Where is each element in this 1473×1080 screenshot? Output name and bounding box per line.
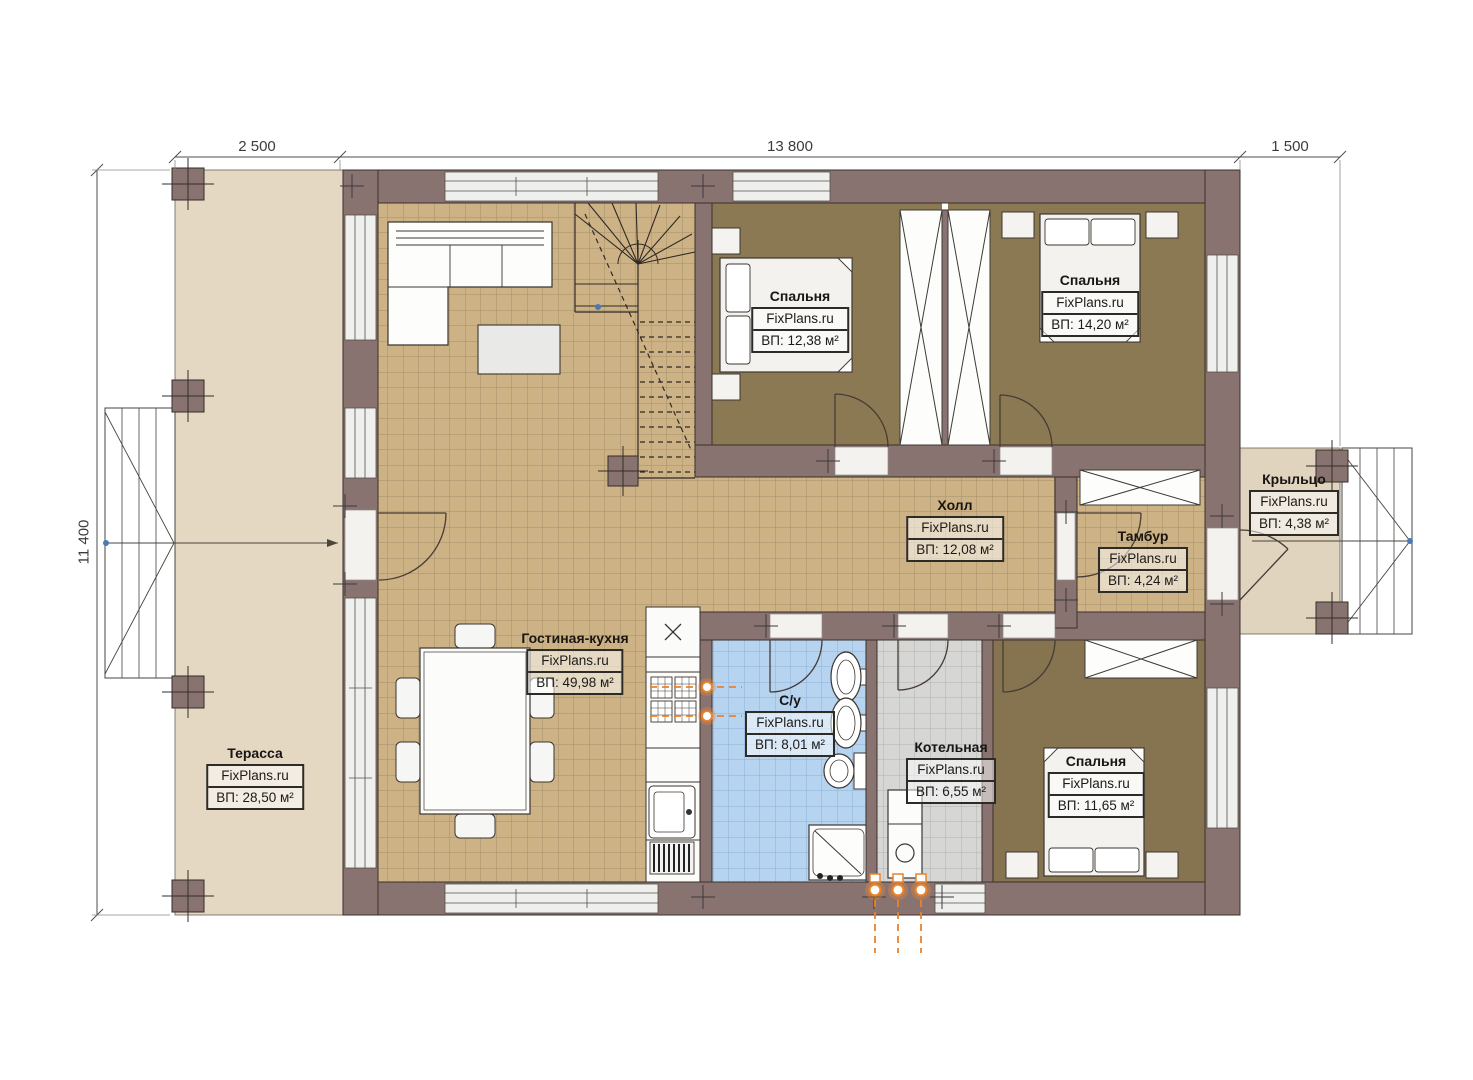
room-label-porch: Крыльцо FixPlans.ru ВП: 4,38 м² [1249, 471, 1339, 536]
wall-wardrobe-divider [942, 210, 948, 445]
room-brand: FixPlans.ru [1050, 774, 1143, 796]
floor-plan: 2 500 13 800 1 500 11 400 Терасса FixPla… [0, 0, 1473, 1080]
dimension-house-depth: 11 400 [76, 520, 93, 565]
shower [809, 825, 868, 881]
kitchen-counter [646, 607, 700, 882]
wardrobe-bedroom1 [900, 210, 942, 445]
door-opening-bedroom1 [835, 447, 888, 475]
wall-bath-boiler [866, 640, 877, 882]
room-label-bedroom1: Спальня FixPlans.ru ВП: 12,38 м² [751, 288, 849, 353]
room-info-box: FixPlans.ru ВП: 11,65 м² [1048, 772, 1145, 818]
room-area: ВП: 49,98 м² [528, 673, 622, 693]
room-brand: FixPlans.ru [1043, 293, 1137, 315]
window-left-3 [345, 598, 376, 868]
toilet [824, 754, 854, 788]
room-area: ВП: 12,38 м² [753, 331, 847, 351]
room-name: С/у [745, 692, 835, 709]
room-name: Спальня [1041, 272, 1139, 289]
room-area: ВП: 14,20 м² [1043, 315, 1137, 335]
room-brand: FixPlans.ru [1251, 492, 1337, 514]
coffee-table [478, 325, 560, 374]
window-left-2 [345, 408, 376, 478]
room-brand: FixPlans.ru [528, 651, 622, 673]
toilet-tank [854, 753, 867, 789]
room-area: ВП: 6,55 м² [908, 782, 994, 802]
door-opening-porch [1207, 528, 1238, 600]
room-brand: FixPlans.ru [1100, 549, 1186, 571]
drainer [650, 842, 694, 874]
room-brand: FixPlans.ru [208, 766, 302, 788]
wall-kitchen-bath [700, 640, 712, 882]
room-label-terrace: Терасса FixPlans.ru ВП: 28,50 м² [206, 745, 304, 810]
room-name: Терасса [206, 745, 304, 762]
window-bedroom2-right [1207, 255, 1238, 372]
dimension-terrace-width: 2 500 [238, 138, 276, 155]
room-brand: FixPlans.ru [747, 713, 833, 735]
room-area: ВП: 8,01 м² [747, 735, 833, 755]
room-name: Спальня [1048, 753, 1145, 770]
room-area: ВП: 4,24 м² [1100, 571, 1186, 591]
sink-2 [831, 698, 861, 748]
window-living-top [445, 172, 658, 201]
room-label-hall: Холл FixPlans.ru ВП: 12,08 м² [906, 497, 1004, 562]
room-label-boiler: Котельная FixPlans.ru ВП: 6,55 м² [906, 739, 996, 804]
room-info-box: FixPlans.ru ВП: 28,50 м² [206, 764, 304, 810]
dining-table [420, 648, 530, 814]
room-name: Гостиная-кухня [521, 630, 628, 647]
room-name: Спальня [751, 288, 849, 305]
wardrobe-bedroom3 [1085, 640, 1197, 678]
window-bedroom3-right [1207, 688, 1238, 828]
room-info-box: FixPlans.ru ВП: 12,38 м² [751, 307, 849, 353]
room-label-bedroom3: Спальня FixPlans.ru ВП: 11,65 м² [1048, 753, 1145, 818]
room-brand: FixPlans.ru [908, 760, 994, 782]
window-living-bottom [445, 884, 658, 913]
room-label-tambour: Тамбур FixPlans.ru ВП: 4,24 м² [1098, 528, 1188, 593]
room-brand: FixPlans.ru [908, 518, 1002, 540]
floor-plan-drawing [0, 0, 1473, 1080]
door-opening-terrace [345, 510, 376, 580]
room-info-box: FixPlans.ru ВП: 8,01 м² [745, 711, 835, 757]
room-info-box: FixPlans.ru ВП: 4,38 м² [1249, 490, 1339, 536]
room-name: Котельная [906, 739, 996, 756]
room-info-box: FixPlans.ru ВП: 12,08 м² [906, 516, 1004, 562]
wall-living-bedroom1 [695, 203, 712, 477]
room-info-box: FixPlans.ru ВП: 4,24 м² [1098, 547, 1188, 593]
room-name: Холл [906, 497, 1004, 514]
steps-marker-dot [103, 540, 109, 546]
room-name: Тамбур [1098, 528, 1188, 545]
kitchen-sink [649, 786, 695, 838]
window-bedroom1-top [733, 172, 830, 201]
dimension-porch-width: 1 500 [1271, 138, 1309, 155]
porch-marker-dot [1407, 538, 1413, 544]
stair-marker-dot [595, 304, 601, 310]
room-info-box: FixPlans.ru ВП: 6,55 м² [906, 758, 996, 804]
room-label-bedroom2: Спальня FixPlans.ru ВП: 14,20 м² [1041, 272, 1139, 337]
room-info-box: FixPlans.ru ВП: 14,20 м² [1041, 291, 1139, 337]
room-label-bathroom: С/у FixPlans.ru ВП: 8,01 м² [745, 692, 835, 757]
room-area: ВП: 28,50 м² [208, 788, 302, 808]
room-area: ВП: 12,08 м² [908, 540, 1002, 560]
sink-1 [831, 652, 861, 702]
room-name: Крыльцо [1249, 471, 1339, 488]
wardrobe-bedroom2 [948, 210, 990, 445]
wardrobe-tambour [1080, 470, 1200, 505]
room-label-living-kitchen: Гостиная-кухня FixPlans.ru ВП: 49,98 м² [521, 630, 628, 695]
room-brand: FixPlans.ru [753, 309, 847, 331]
room-info-box: FixPlans.ru ВП: 49,98 м² [526, 649, 624, 695]
room-area: ВП: 4,38 м² [1251, 514, 1337, 534]
room-area: ВП: 11,65 м² [1050, 796, 1143, 816]
door-opening-bedroom2 [1000, 447, 1052, 475]
window-left-1 [345, 215, 376, 340]
dimension-house-width: 13 800 [767, 138, 813, 155]
